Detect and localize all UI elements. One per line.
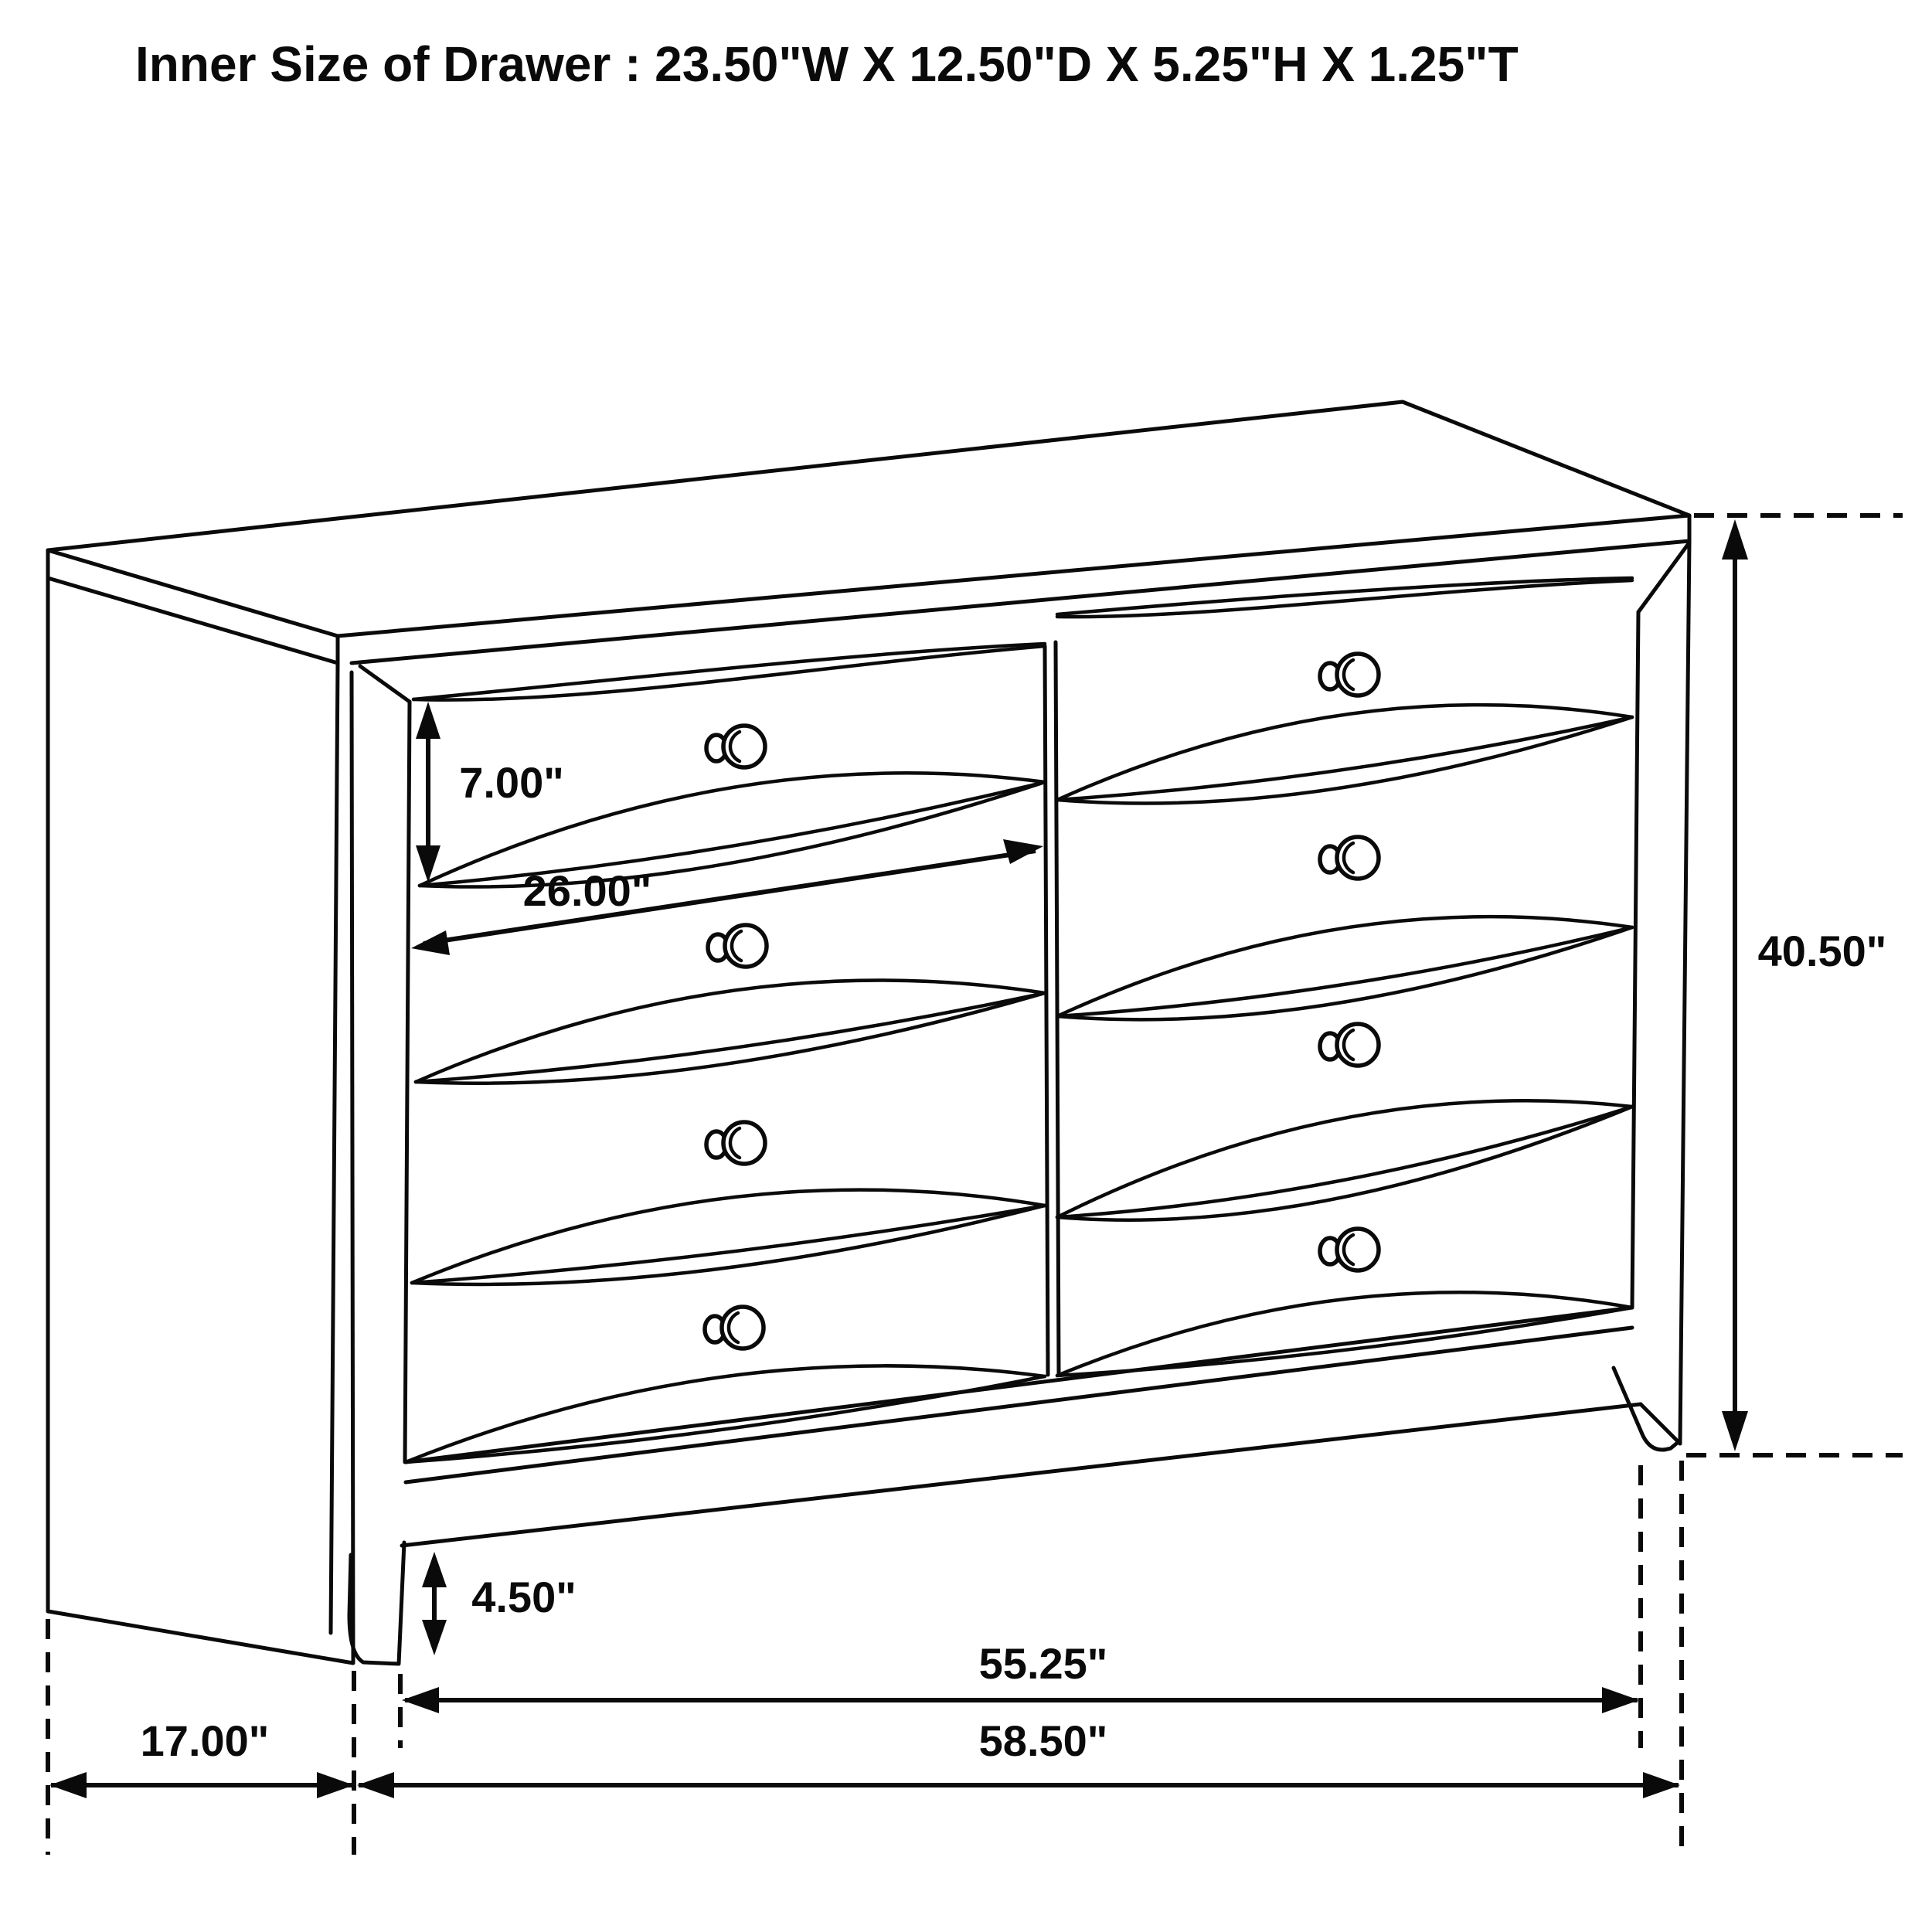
drawer-knob xyxy=(708,925,767,967)
drawer-knob xyxy=(1320,1024,1379,1066)
arrowhead-right-icon xyxy=(317,1772,354,1798)
arrowhead-left-icon xyxy=(411,930,450,955)
arrowhead-up-icon xyxy=(416,702,440,739)
dimension-base-width: 55.25" xyxy=(402,1639,1639,1713)
drawer-knob xyxy=(705,1307,764,1349)
arrowhead-down-icon xyxy=(1722,1411,1748,1451)
drawer-knobs xyxy=(705,654,1379,1349)
overall-width-label: 58.50" xyxy=(979,1716,1108,1765)
drawer-knob xyxy=(1320,654,1379,696)
arrowhead-down-icon xyxy=(422,1620,447,1655)
diagram-title: Inner Size of Drawer : 23.50"W X 12.50"D… xyxy=(135,36,1519,92)
arrowhead-left-icon xyxy=(357,1772,394,1798)
drawer-knob xyxy=(1320,837,1379,879)
center-divider xyxy=(1045,642,1059,1375)
dimension-foot-height: 4.50" xyxy=(422,1552,577,1655)
drawer-height-label: 7.00" xyxy=(459,758,564,807)
drawer-width-label: 26.00" xyxy=(523,866,652,915)
dimension-overall-width: 58.50" xyxy=(357,1716,1680,1798)
arrowhead-right-icon xyxy=(1602,1687,1639,1713)
drawer-knob xyxy=(1320,1229,1379,1270)
overall-height-label: 40.50" xyxy=(1758,927,1887,975)
diagram-page: Inner Size of Drawer : 23.50"W X 12.50"D… xyxy=(0,0,1932,1932)
left-foot xyxy=(349,1543,404,1664)
foot-height-label: 4.50" xyxy=(471,1573,577,1621)
extension-lines xyxy=(48,1461,1682,1855)
arrowhead-up-icon xyxy=(422,1552,447,1587)
arrowhead-right-icon xyxy=(1003,839,1043,864)
depth-label: 17.00" xyxy=(141,1716,270,1765)
drawer-knob xyxy=(706,1122,765,1164)
arrowhead-right-icon xyxy=(1643,1772,1680,1798)
dresser-dimension-diagram: Inner Size of Drawer : 23.50"W X 12.50"D… xyxy=(0,0,1932,1932)
bottom-rail xyxy=(402,1308,1680,1546)
base-width-label: 55.25" xyxy=(979,1639,1108,1688)
left-side-panel xyxy=(48,578,353,1663)
top-surface xyxy=(48,402,1689,663)
arrowhead-left-icon xyxy=(402,1687,439,1713)
dimension-overall-height: 40.50" xyxy=(1686,515,1903,1455)
dimension-depth: 17.00" xyxy=(49,1716,354,1798)
drawer-knob xyxy=(706,726,765,767)
arrowhead-left-icon xyxy=(49,1772,87,1798)
arrowhead-up-icon xyxy=(1722,519,1748,560)
